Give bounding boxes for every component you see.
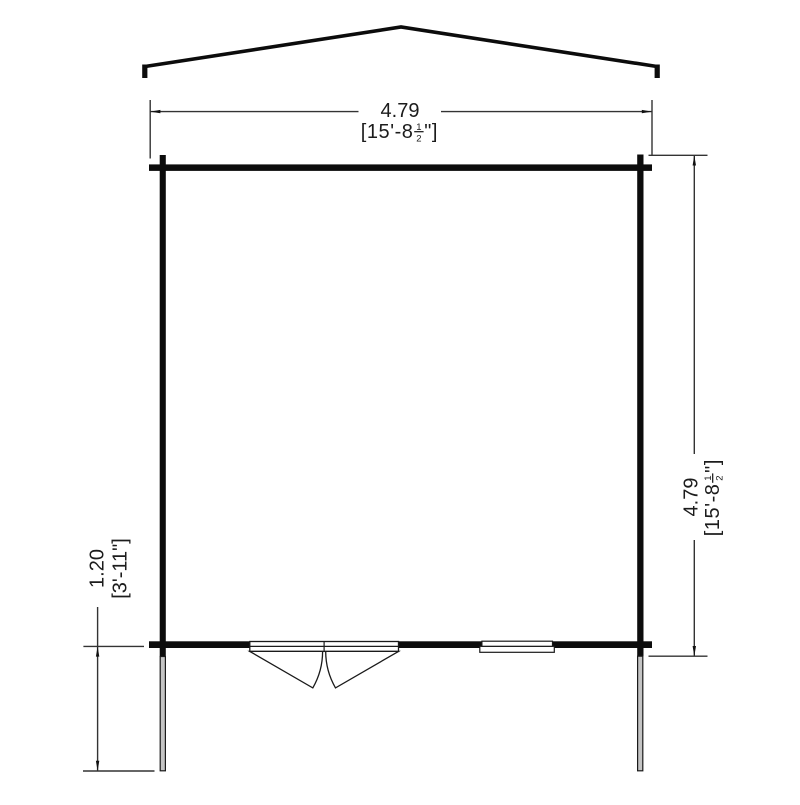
svg-text:4.79: 4.79 <box>681 478 703 517</box>
svg-text:1: 1 <box>416 122 421 133</box>
svg-text:2: 2 <box>416 133 421 144</box>
svg-text:[3'-11"]: [3'-11"] <box>109 538 131 599</box>
svg-text:"]: "] <box>424 121 438 143</box>
svg-text:4.79: 4.79 <box>381 100 420 122</box>
svg-text:"]: "] <box>702 459 724 473</box>
svg-text:2: 2 <box>714 475 725 480</box>
svg-text:1: 1 <box>703 475 714 480</box>
svg-text:1.20: 1.20 <box>86 549 108 588</box>
svg-text:[15'-8: [15'-8 <box>702 484 724 537</box>
svg-text:[15'-8: [15'-8 <box>361 121 414 143</box>
